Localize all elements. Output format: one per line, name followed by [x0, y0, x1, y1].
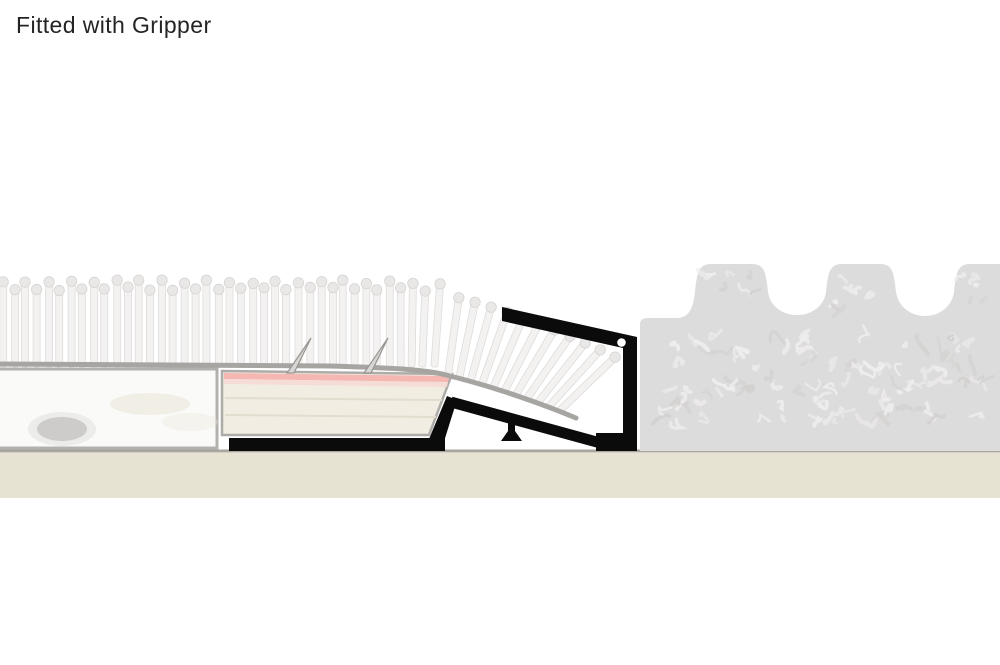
carpet-tuft — [248, 278, 258, 367]
diagram-canvas: Fitted with Gripper — [0, 0, 1000, 665]
carpet-tuft — [77, 284, 87, 367]
carpet-tuft — [179, 278, 189, 367]
right-carpet — [640, 264, 1000, 451]
trim-floor-flange — [229, 438, 445, 451]
carpet-tuft — [190, 284, 200, 367]
carpet-tuft — [328, 282, 338, 367]
carpet-tuft — [385, 276, 395, 367]
trim-bottom-connector — [596, 433, 624, 451]
carpet-texture-squiggle — [969, 297, 971, 302]
underlay-texture-blob — [37, 417, 87, 441]
carpet-tuft — [31, 284, 41, 367]
carpet-texture-squiggle — [904, 343, 906, 346]
carpet-tuft — [417, 286, 431, 368]
carpet-texture-squiggle — [974, 284, 978, 287]
trim-lower-jaw — [451, 402, 604, 444]
carpet-tuft — [112, 275, 122, 367]
underlay-texture-smudge — [162, 413, 218, 431]
carpet-tuft — [305, 282, 315, 367]
gripper-strip — [222, 371, 452, 435]
carpet-tuft — [167, 285, 177, 367]
carpet-tuft — [20, 277, 30, 367]
carpet-tuft — [429, 278, 445, 367]
carpet-texture-squiggle — [870, 388, 877, 393]
carpet-tuft — [259, 283, 269, 367]
underlay — [0, 369, 218, 448]
carpet-tuft — [396, 283, 406, 368]
carpet-texture-squiggle — [867, 292, 874, 297]
subfloor-body — [0, 452, 1000, 498]
carpet-texture-squiggle — [897, 406, 911, 410]
carpet-tuft — [145, 285, 155, 367]
carpet-tuft — [281, 284, 291, 367]
carpet-texture-squiggle — [753, 366, 758, 369]
carpet-tuft — [123, 282, 133, 367]
carpet-tuft — [54, 285, 64, 367]
carpet-gripper-diagram — [0, 0, 1000, 665]
underlay-texture-smudge — [110, 393, 190, 415]
carpet-tuft — [99, 284, 109, 367]
carpet-tuft — [406, 278, 418, 367]
carpet-tuft — [134, 275, 144, 367]
carpet-tuft — [361, 278, 371, 367]
carpet-tuft — [236, 283, 246, 367]
carpet-tuft — [270, 276, 280, 367]
carpet-tuft — [66, 276, 76, 367]
subfloor — [0, 450, 1000, 499]
carpet-tuft — [349, 284, 359, 367]
carpet-tuft — [317, 277, 327, 368]
carpet-tuft — [214, 284, 224, 367]
carpet-tuft — [157, 275, 167, 367]
trim-screw-hole — [617, 338, 626, 347]
carpet-tuft — [224, 277, 234, 367]
carpet-tuft — [201, 275, 211, 367]
carpet-tuft — [10, 285, 20, 368]
carpet-tuft — [338, 275, 348, 367]
carpet-tuft — [44, 277, 54, 367]
carpet-tuft — [89, 277, 99, 367]
carpet-tuft — [0, 277, 8, 367]
